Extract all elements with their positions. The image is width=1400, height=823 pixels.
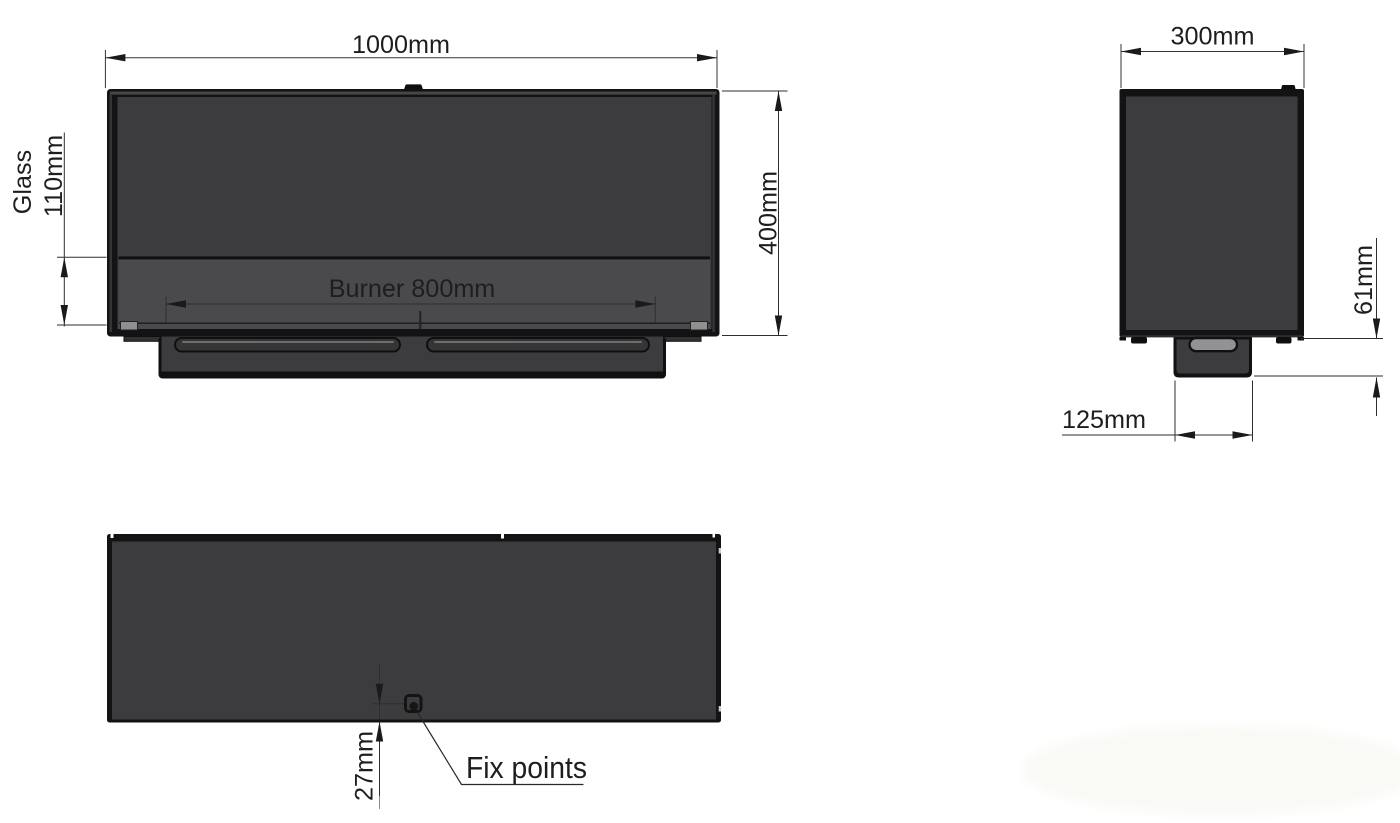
- svg-text:Glass: Glass: [9, 150, 37, 214]
- svg-text:300mm: 300mm: [1171, 23, 1255, 51]
- svg-text:61mm: 61mm: [1350, 245, 1378, 315]
- svg-text:125mm: 125mm: [1062, 406, 1146, 434]
- svg-text:Burner 800mm: Burner 800mm: [329, 275, 496, 303]
- svg-text:110mm: 110mm: [40, 135, 68, 217]
- svg-text:1000mm: 1000mm: [352, 31, 450, 59]
- svg-text:27mm: 27mm: [351, 731, 379, 801]
- svg-text:Fix points: Fix points: [466, 750, 587, 785]
